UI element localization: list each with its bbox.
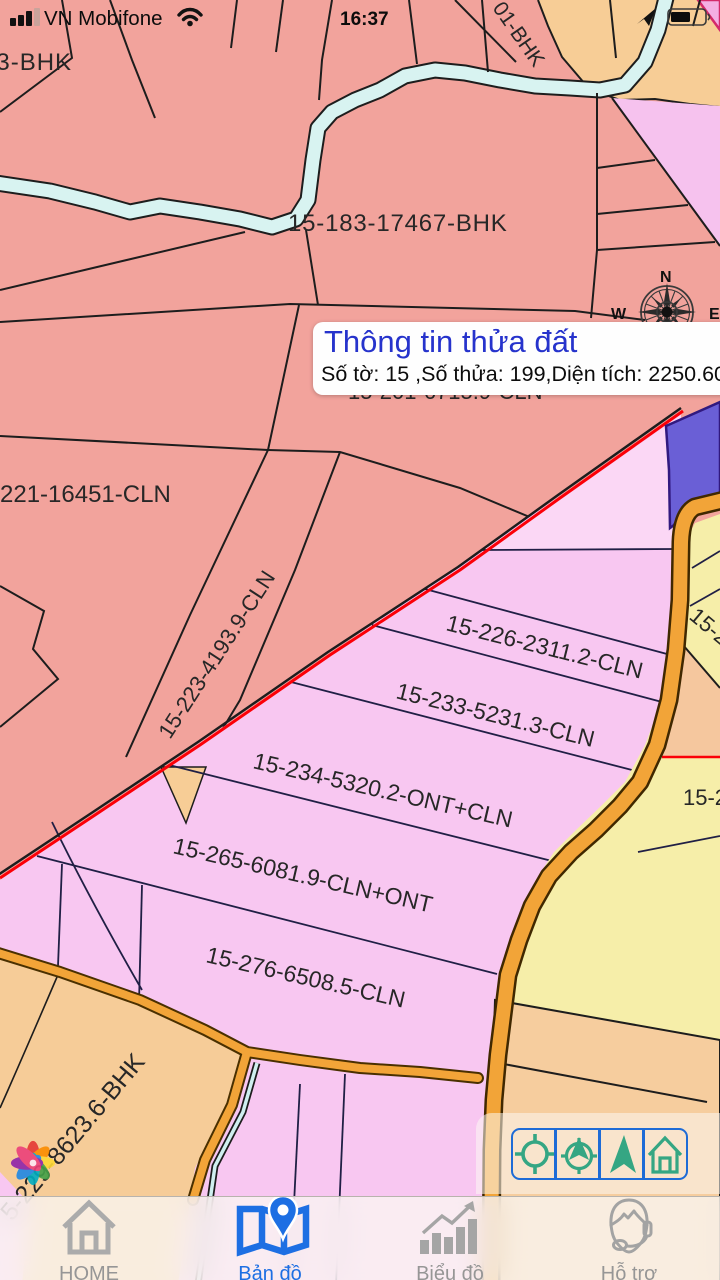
- svg-text:W: W: [611, 306, 627, 323]
- svg-text:16:37: 16:37: [340, 9, 389, 30]
- svg-text:VN Mobifone: VN Mobifone: [44, 7, 163, 30]
- svg-text:15-183-17467-BHK: 15-183-17467-BHK: [288, 210, 508, 237]
- svg-text:E: E: [709, 306, 720, 323]
- svg-text:N: N: [660, 269, 672, 286]
- svg-text:15-2: 15-2: [683, 785, 720, 810]
- svg-text:63-BHK: 63-BHK: [0, 49, 72, 76]
- svg-text:221-16451-CLN: 221-16451-CLN: [0, 481, 171, 508]
